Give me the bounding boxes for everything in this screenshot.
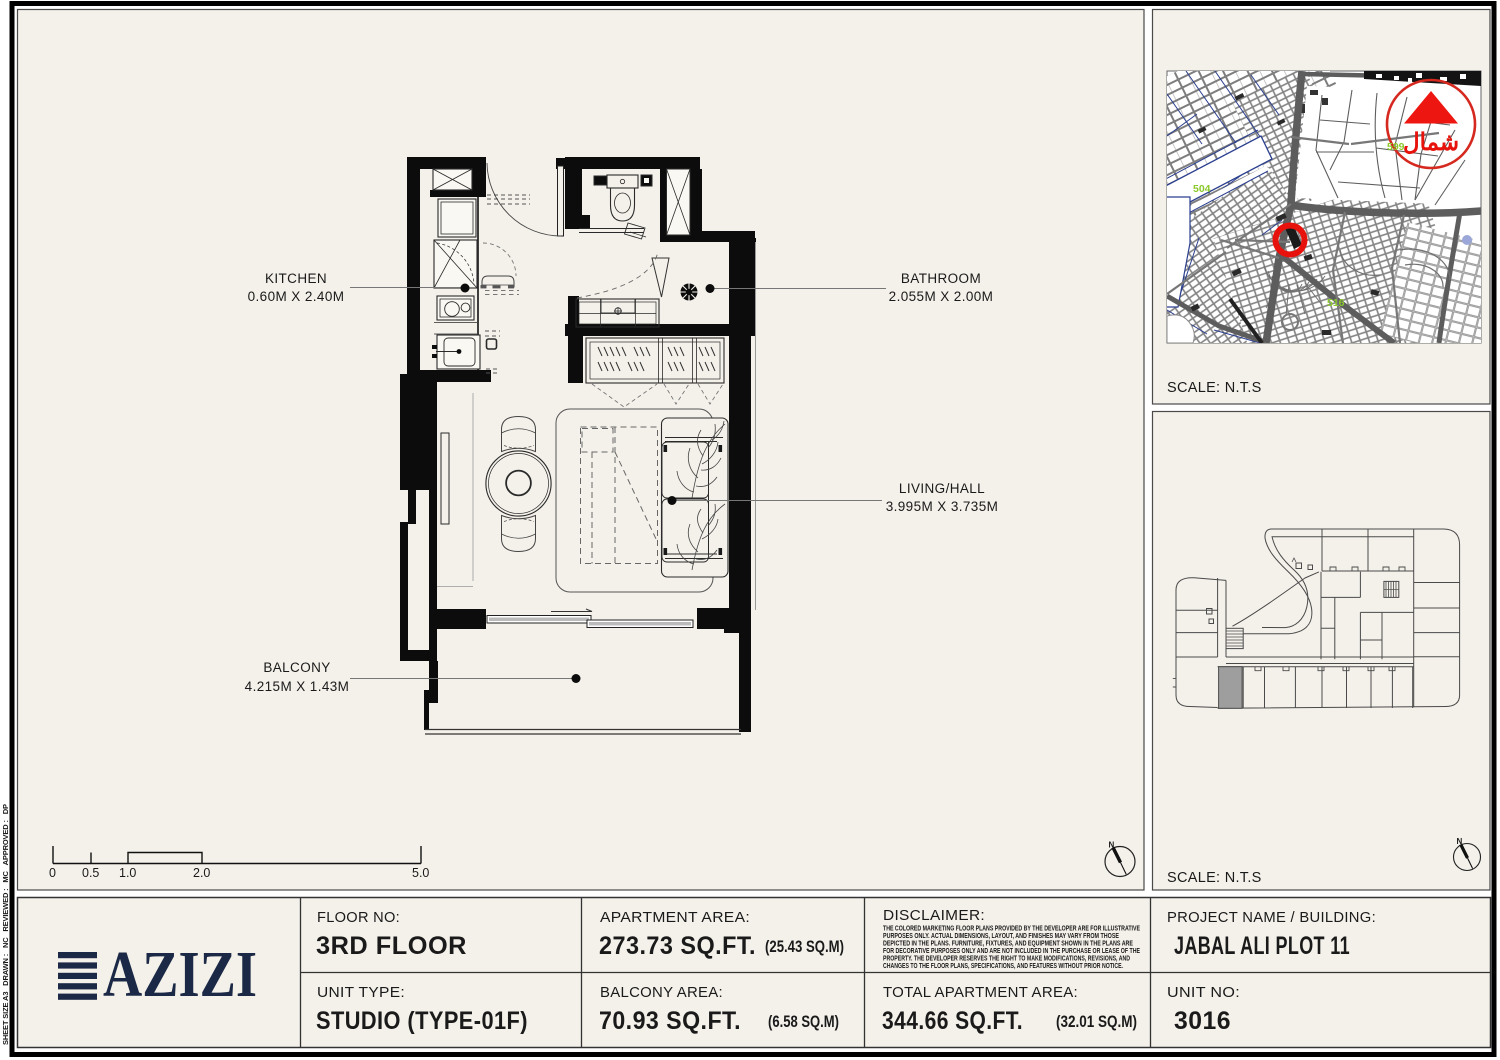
svg-text:BATHROOM: BATHROOM [901, 271, 981, 286]
svg-text:FLOOR NO:: FLOOR NO: [317, 909, 400, 926]
svg-text:CHANGES TO THE FLOOR PLANS, SP: CHANGES TO THE FLOOR PLANS, SPECIFICATIO… [883, 963, 1123, 970]
svg-text:599: 599 [1387, 141, 1405, 153]
svg-text:شمال: شمال [1403, 129, 1459, 156]
svg-text:0.5: 0.5 [82, 866, 99, 880]
svg-text:APARTMENT AREA:: APARTMENT AREA: [600, 909, 750, 926]
svg-text:344.66 SQ.FT.: 344.66 SQ.FT. [882, 1007, 1023, 1035]
svg-text:UNIT TYPE:: UNIT TYPE: [317, 984, 405, 1001]
svg-text:JABAL ALI PLOT 11: JABAL ALI PLOT 11 [1174, 932, 1350, 960]
svg-text:3.995M X 3.735M: 3.995M X 3.735M [886, 499, 999, 514]
svg-text:BALCONY: BALCONY [263, 660, 330, 675]
svg-text:0.60M X 2.40M: 0.60M X 2.40M [248, 289, 345, 304]
svg-text:2.055M X 2.00M: 2.055M X 2.00M [889, 289, 994, 304]
svg-text:1.0: 1.0 [119, 866, 136, 880]
svg-text:FOR DECORATIVE PURPOSES ONLY A: FOR DECORATIVE PURPOSES ONLY AND ARE NOT… [883, 948, 1140, 955]
svg-text:70.93 SQ.FT.: 70.93 SQ.FT. [599, 1007, 741, 1035]
svg-text:LIVING/HALL: LIVING/HALL [899, 481, 985, 496]
svg-text:SCALE: N.T.S: SCALE: N.T.S [1167, 870, 1262, 886]
svg-text:273.73 SQ.FT.: 273.73 SQ.FT. [599, 932, 756, 960]
svg-text:STUDIO (TYPE-01F): STUDIO (TYPE-01F) [316, 1007, 528, 1035]
svg-text:DEPICTED IN THE PLANS. FURNITU: DEPICTED IN THE PLANS. FURNITURE, FIXTUR… [883, 941, 1133, 948]
svg-text:N: N [1109, 841, 1115, 850]
svg-text:PROPERTY. THE DEVELOPER RESERV: PROPERTY. THE DEVELOPER RESERVES THE RIG… [883, 956, 1130, 963]
svg-text:AZIZI: AZIZI [103, 938, 257, 1011]
svg-text:SCALE: N.T.S: SCALE: N.T.S [1167, 380, 1262, 396]
svg-text:(32.01 SQ.M): (32.01 SQ.M) [1056, 1012, 1137, 1031]
svg-text:UNIT NO:: UNIT NO: [1167, 984, 1240, 1001]
svg-text:N: N [1457, 837, 1463, 846]
svg-text:504: 504 [1193, 183, 1211, 195]
svg-text:THE COLORED MARKETING FLOOR PL: THE COLORED MARKETING FLOOR PLANS PROVID… [883, 926, 1140, 933]
svg-text:(25.43 SQ.M): (25.43 SQ.M) [765, 937, 844, 956]
svg-text:4.215M X 1.43M: 4.215M X 1.43M [245, 679, 350, 694]
svg-text:(6.58 SQ.M): (6.58 SQ.M) [768, 1012, 839, 1031]
svg-text:2.0: 2.0 [193, 866, 210, 880]
svg-text:3016: 3016 [1174, 1007, 1231, 1035]
svg-text:3RD FLOOR: 3RD FLOOR [316, 932, 467, 960]
svg-text:BALCONY AREA:: BALCONY AREA: [600, 984, 723, 1001]
svg-text:5.0: 5.0 [412, 866, 429, 880]
svg-text:KITCHEN: KITCHEN [265, 271, 327, 286]
svg-text:0: 0 [49, 866, 56, 880]
svg-text:TOTAL APARTMENT AREA:: TOTAL APARTMENT AREA: [883, 984, 1078, 1001]
svg-text:DISCLAIMER:: DISCLAIMER: [883, 907, 985, 924]
svg-text:516: 516 [1327, 297, 1345, 309]
svg-text:PROJECT NAME / BUILDING:: PROJECT NAME / BUILDING: [1167, 909, 1376, 926]
svg-text:SHEET SIZE A3 DRAWN : NC: SHEET SIZE A3 DRAWN : NC REVIEWED : MC A… [1, 804, 10, 1045]
svg-text:PURPOSES ONLY. ACTUAL DIMENSIO: PURPOSES ONLY. ACTUAL DIMENSIONS, LAYOUT… [883, 933, 1119, 940]
